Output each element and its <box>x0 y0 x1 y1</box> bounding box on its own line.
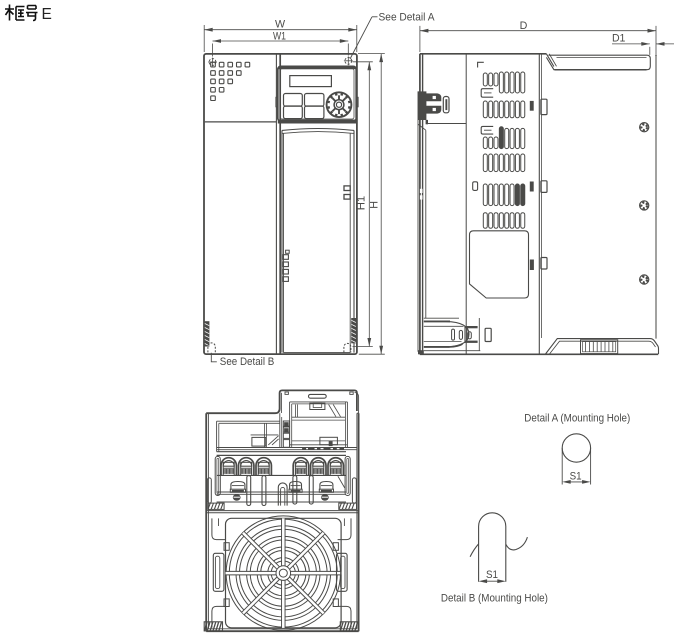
svg-text:Detail B (Mounting Hole): Detail B (Mounting Hole) <box>441 593 548 605</box>
svg-text:See Detail B: See Detail B <box>220 356 274 368</box>
svg-text:Detail A (Mounting Hole): Detail A (Mounting Hole) <box>524 413 630 425</box>
svg-text:W: W <box>275 19 286 31</box>
svg-text:H: H <box>368 201 380 209</box>
svg-text:H1: H1 <box>356 196 368 211</box>
svg-text:See Detail A: See Detail A <box>379 12 436 24</box>
svg-text:S1: S1 <box>486 569 498 581</box>
svg-text:D: D <box>520 20 528 32</box>
svg-text:S1: S1 <box>570 471 582 483</box>
svg-text:D1: D1 <box>612 33 626 45</box>
svg-text:E: E <box>42 6 52 23</box>
svg-text:W1: W1 <box>273 31 286 43</box>
